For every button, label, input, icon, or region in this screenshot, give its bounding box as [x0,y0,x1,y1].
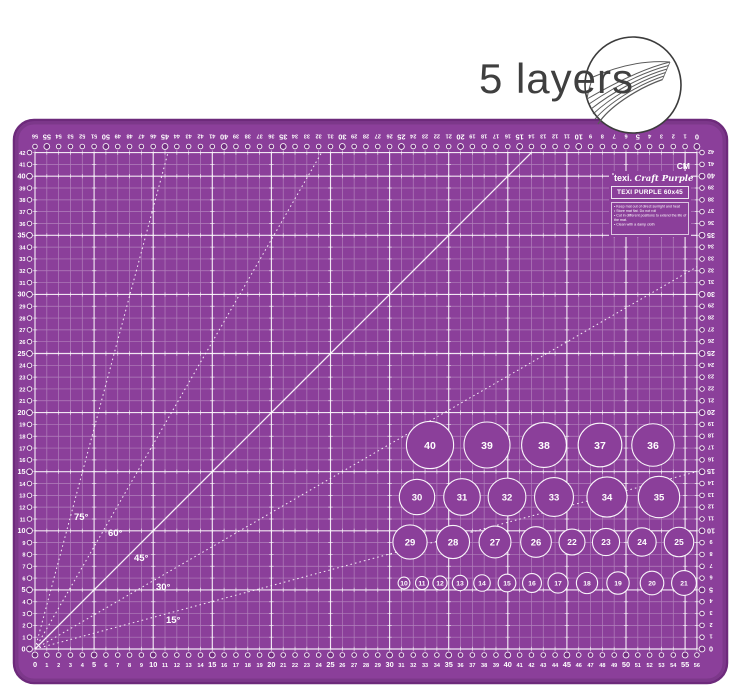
svg-text:14: 14 [527,132,534,138]
brand-logo: *texi. Craft Purple [612,173,689,184]
svg-text:35: 35 [279,132,287,141]
svg-text:13: 13 [19,494,25,500]
svg-text:26: 26 [708,337,714,343]
svg-text:28: 28 [708,314,714,320]
svg-text:16: 16 [221,663,227,669]
svg-text:26: 26 [19,340,25,346]
svg-text:34: 34 [434,663,441,669]
svg-text:22: 22 [292,663,298,669]
svg-text:23: 23 [19,375,25,381]
svg-text:1: 1 [709,633,712,639]
svg-text:45: 45 [563,660,571,669]
svg-text:26: 26 [386,132,392,138]
svg-text:32: 32 [316,132,322,138]
svg-text:15: 15 [208,660,216,669]
svg-text:5: 5 [22,585,26,594]
svg-text:17: 17 [708,444,714,450]
svg-text:41: 41 [209,132,215,138]
svg-text:12: 12 [708,503,714,509]
svg-text:18: 18 [245,663,251,669]
svg-text:8: 8 [128,663,131,669]
svg-text:10: 10 [707,526,715,535]
svg-text:14: 14 [707,479,714,485]
svg-text:30: 30 [707,290,715,299]
brand-logo-craft: Craft Purple [634,174,693,184]
svg-text:10: 10 [149,660,157,669]
svg-text:16: 16 [708,455,714,461]
svg-text:5: 5 [709,585,713,594]
svg-text:17: 17 [19,446,25,452]
svg-text:25: 25 [397,132,405,141]
svg-text:18: 18 [708,432,714,438]
svg-text:42: 42 [197,132,203,138]
svg-text:40: 40 [18,172,26,181]
svg-text:20: 20 [18,408,26,417]
svg-text:51: 51 [635,663,641,669]
svg-text:9: 9 [140,663,143,669]
svg-text:32: 32 [19,269,25,275]
svg-text:10: 10 [18,526,26,535]
svg-text:37: 37 [469,663,475,669]
svg-text:14: 14 [19,482,26,488]
svg-text:0: 0 [22,644,26,653]
svg-text:31: 31 [708,278,714,284]
svg-text:30: 30 [18,290,26,299]
svg-text:54: 54 [55,132,62,138]
svg-text:53: 53 [67,132,73,138]
svg-text:28: 28 [363,132,369,138]
circle-size-label: 16 [528,580,536,587]
svg-text:38: 38 [19,198,25,204]
svg-text:54: 54 [670,663,677,669]
svg-text:28: 28 [363,663,369,669]
svg-text:31: 31 [19,281,25,287]
model-label: TEXI PURPLE 60x45 [611,186,689,199]
svg-text:51: 51 [91,132,97,138]
svg-text:35: 35 [18,231,26,240]
svg-text:1: 1 [45,663,48,669]
svg-text:7: 7 [22,565,25,571]
svg-text:47: 47 [587,663,593,669]
svg-text:2: 2 [57,663,60,669]
svg-text:19: 19 [708,420,714,426]
svg-text:5: 5 [92,660,96,669]
circle-size-label: 26 [531,537,542,548]
svg-text:1: 1 [22,635,25,641]
svg-text:35: 35 [707,231,715,240]
svg-text:22: 22 [434,132,440,138]
svg-text:27: 27 [351,663,357,669]
svg-text:11: 11 [20,517,26,523]
svg-text:41: 41 [517,663,523,669]
svg-text:33: 33 [422,663,428,669]
svg-text:34: 34 [707,243,714,249]
svg-text:31: 31 [398,663,404,669]
svg-text:20: 20 [707,408,715,417]
svg-text:26: 26 [339,663,345,669]
svg-text:19: 19 [19,423,25,429]
circle-size-label: 32 [502,492,513,503]
svg-text:41: 41 [708,160,714,166]
angle-label: 75° [74,512,89,523]
svg-text:29: 29 [708,302,714,308]
svg-text:39: 39 [708,184,714,190]
svg-text:36: 36 [19,222,25,228]
product-photo: 75°60°45°30°15°4039383736303132333435292… [0,0,732,688]
svg-text:32: 32 [708,266,714,272]
circle-size-label: 36 [647,440,659,452]
svg-text:22: 22 [19,387,25,393]
circle-size-label: 34 [602,492,613,503]
svg-text:12: 12 [552,132,558,138]
brand-logo-texi: texi. [614,173,632,183]
angle-label: 45° [134,553,149,564]
svg-text:29: 29 [19,305,25,311]
circle-size-label: 38 [538,440,550,452]
care-item: Cut in different positions to extend the… [614,214,689,223]
circle-size-label: 18 [583,580,591,587]
svg-text:21: 21 [708,396,714,402]
svg-text:49: 49 [115,132,121,138]
layers-badge-label: 5 layers [438,58,634,100]
svg-text:13: 13 [708,491,714,497]
svg-text:19: 19 [256,663,262,669]
svg-text:56: 56 [694,663,700,669]
svg-text:55: 55 [43,132,51,141]
svg-text:24: 24 [19,364,26,370]
care-instructions: Keep mat out of direct sunlight and heat… [611,202,689,235]
svg-text:9: 9 [709,538,712,544]
svg-text:25: 25 [707,349,715,358]
svg-text:3: 3 [22,612,25,618]
circle-size-label: 17 [554,580,562,587]
svg-text:22: 22 [708,384,714,390]
svg-text:42: 42 [708,148,714,154]
svg-text:34: 34 [291,132,298,138]
angle-label: 60° [108,528,123,539]
angle-label: 15° [166,615,181,626]
svg-text:50: 50 [622,660,630,669]
svg-text:2: 2 [22,624,25,630]
svg-text:25: 25 [326,660,334,669]
svg-text:40: 40 [707,172,715,181]
svg-text:37: 37 [708,207,714,213]
circle-size-label: 22 [567,537,577,547]
circle-size-label: 31 [457,492,468,503]
svg-text:11: 11 [564,132,570,138]
svg-text:20: 20 [456,132,464,141]
circle-size-label: 20 [648,580,656,587]
svg-text:23: 23 [422,132,428,138]
svg-text:24: 24 [707,361,714,367]
svg-text:49: 49 [611,663,617,669]
svg-text:3: 3 [709,609,712,615]
svg-text:3: 3 [69,663,72,669]
svg-text:37: 37 [19,210,25,216]
svg-text:0: 0 [709,645,713,654]
circle-size-label: 10 [400,580,408,587]
circle-size-label: 37 [594,440,606,452]
svg-text:13: 13 [186,663,192,669]
svg-text:42: 42 [19,151,25,157]
svg-text:34: 34 [19,245,26,251]
svg-text:52: 52 [647,663,653,669]
svg-text:39: 39 [233,132,239,138]
svg-text:41: 41 [19,163,25,169]
unit-label: CM [677,161,690,171]
circle-size-label: 28 [448,537,459,548]
svg-text:21: 21 [280,663,286,669]
svg-text:23: 23 [304,663,310,669]
svg-text:21: 21 [19,399,25,405]
svg-text:9: 9 [22,541,25,547]
svg-text:43: 43 [540,663,546,669]
svg-text:13: 13 [540,132,546,138]
svg-text:35: 35 [445,660,453,669]
circle-size-label: 11 [418,580,425,587]
svg-text:46: 46 [576,663,582,669]
svg-text:27: 27 [375,132,381,138]
svg-text:14: 14 [197,663,204,669]
svg-text:30: 30 [338,132,346,141]
svg-text:15: 15 [707,467,715,476]
svg-text:33: 33 [19,257,25,263]
svg-text:33: 33 [708,254,714,260]
svg-text:29: 29 [375,663,381,669]
svg-text:16: 16 [505,132,511,138]
svg-text:38: 38 [481,663,487,669]
svg-text:21: 21 [446,132,452,138]
circle-size-label: 35 [654,492,665,503]
circle-size-label: 40 [424,440,436,452]
svg-text:30: 30 [385,660,393,669]
circle-size-label: 25 [674,537,684,547]
svg-text:29: 29 [351,132,357,138]
mat-branding: *texi. Craft Purple TEXI PURPLE 60x45 Ke… [609,171,691,237]
svg-text:42: 42 [528,663,534,669]
svg-text:37: 37 [256,132,262,138]
circle-size-label: 12 [436,580,444,587]
svg-text:8: 8 [22,553,25,559]
svg-text:18: 18 [481,132,487,138]
svg-text:33: 33 [304,132,310,138]
svg-text:38: 38 [708,195,714,201]
svg-text:46: 46 [150,132,156,138]
svg-text:53: 53 [658,663,664,669]
angle-label: 30° [156,582,171,593]
svg-text:18: 18 [19,435,25,441]
svg-text:15: 15 [516,132,524,141]
svg-text:44: 44 [173,132,180,138]
circle-size-label: 30 [412,492,423,503]
svg-text:2: 2 [709,621,712,627]
svg-text:39: 39 [19,186,25,192]
svg-text:40: 40 [220,132,228,141]
svg-text:36: 36 [268,132,274,138]
svg-text:11: 11 [162,663,168,669]
circle-size-label: 13 [456,580,464,587]
svg-text:27: 27 [19,328,25,334]
svg-text:16: 16 [19,458,25,464]
svg-text:45: 45 [161,132,169,141]
circle-size-label: 14 [478,580,486,587]
svg-text:19: 19 [469,132,475,138]
circle-size-label: 33 [549,492,560,503]
svg-text:25: 25 [18,349,26,358]
svg-text:17: 17 [493,132,499,138]
circle-size-label: 29 [405,537,416,548]
svg-text:40: 40 [504,660,512,669]
svg-text:39: 39 [493,663,499,669]
svg-text:12: 12 [19,505,25,511]
svg-text:56: 56 [32,132,38,138]
svg-text:11: 11 [708,514,714,520]
circle-size-label: 19 [614,580,622,587]
circle-size-label: 15 [503,580,511,587]
circle-size-label: 39 [481,440,493,452]
svg-text:15: 15 [18,467,26,476]
svg-text:6: 6 [709,574,712,580]
svg-text:6: 6 [104,663,107,669]
svg-text:24: 24 [316,663,323,669]
svg-text:47: 47 [138,132,144,138]
svg-text:38: 38 [245,132,251,138]
svg-text:7: 7 [116,663,119,669]
svg-text:8: 8 [709,550,712,556]
svg-text:48: 48 [126,132,132,138]
svg-text:27: 27 [708,325,714,331]
svg-text:17: 17 [233,663,239,669]
svg-text:52: 52 [79,132,85,138]
svg-text:36: 36 [708,219,714,225]
circle-size-label: 23 [601,537,611,547]
circle-size-label: 27 [490,537,501,548]
svg-text:7: 7 [709,562,712,568]
circle-size-label: 24 [637,537,647,547]
svg-text:32: 32 [410,663,416,669]
care-item: Clean with a damp cloth [614,223,689,228]
svg-text:48: 48 [599,663,605,669]
svg-text:12: 12 [174,663,180,669]
svg-text:23: 23 [708,373,714,379]
svg-text:43: 43 [186,132,192,138]
svg-text:36: 36 [457,663,463,669]
svg-text:50: 50 [102,132,110,141]
svg-text:28: 28 [19,316,25,322]
svg-text:55: 55 [681,660,689,669]
svg-text:0: 0 [33,660,37,669]
svg-text:20: 20 [267,660,275,669]
svg-text:31: 31 [327,132,333,138]
svg-text:24: 24 [409,132,416,138]
circle-size-label: 21 [680,580,688,587]
svg-text:6: 6 [22,576,25,582]
svg-text:44: 44 [552,663,559,669]
